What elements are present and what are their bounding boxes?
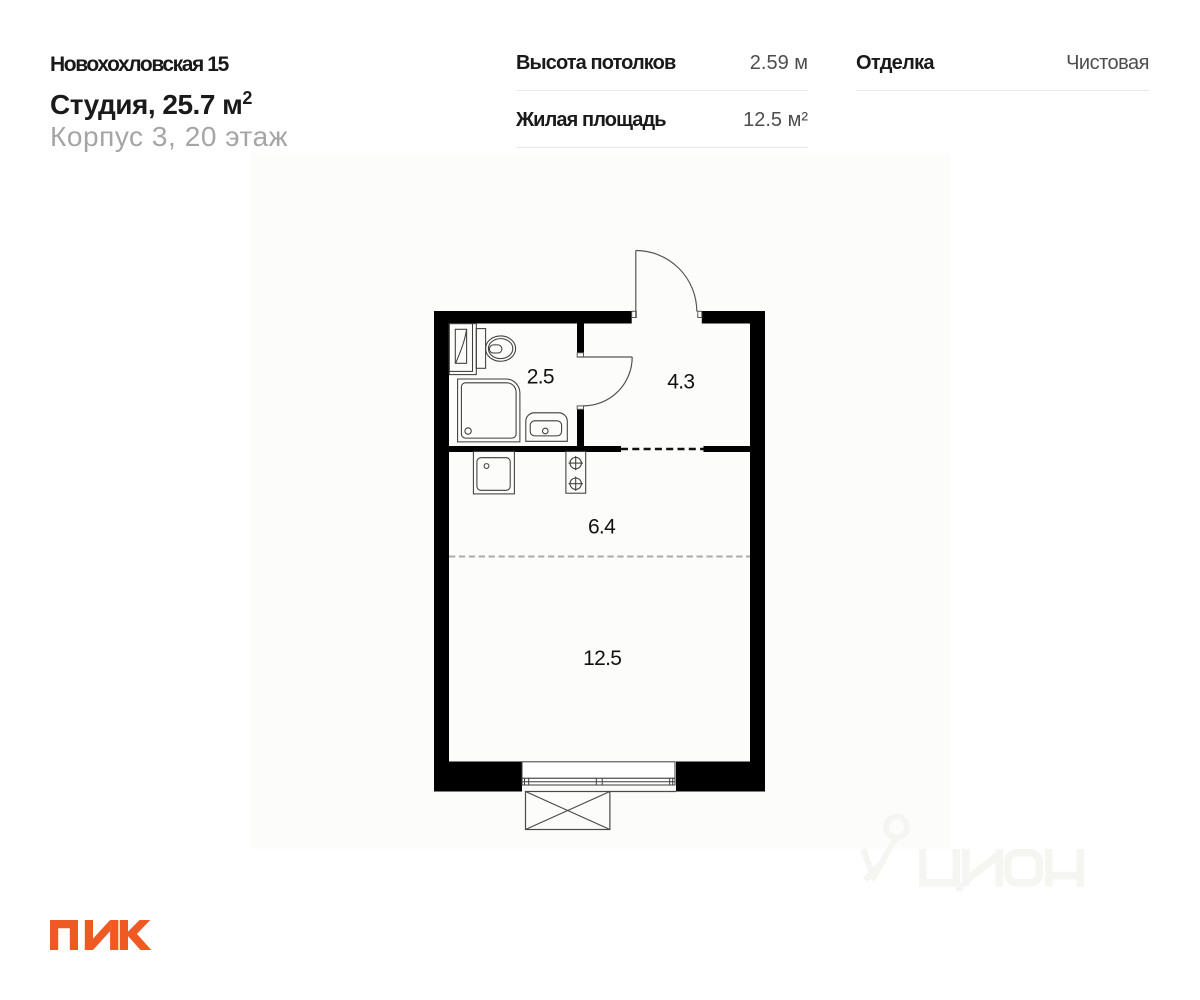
svg-text:6.4: 6.4 [588,516,616,539]
svg-text:2.5: 2.5 [527,366,554,389]
svg-text:12.5: 12.5 [583,647,621,670]
svg-text:4.3: 4.3 [667,371,694,394]
